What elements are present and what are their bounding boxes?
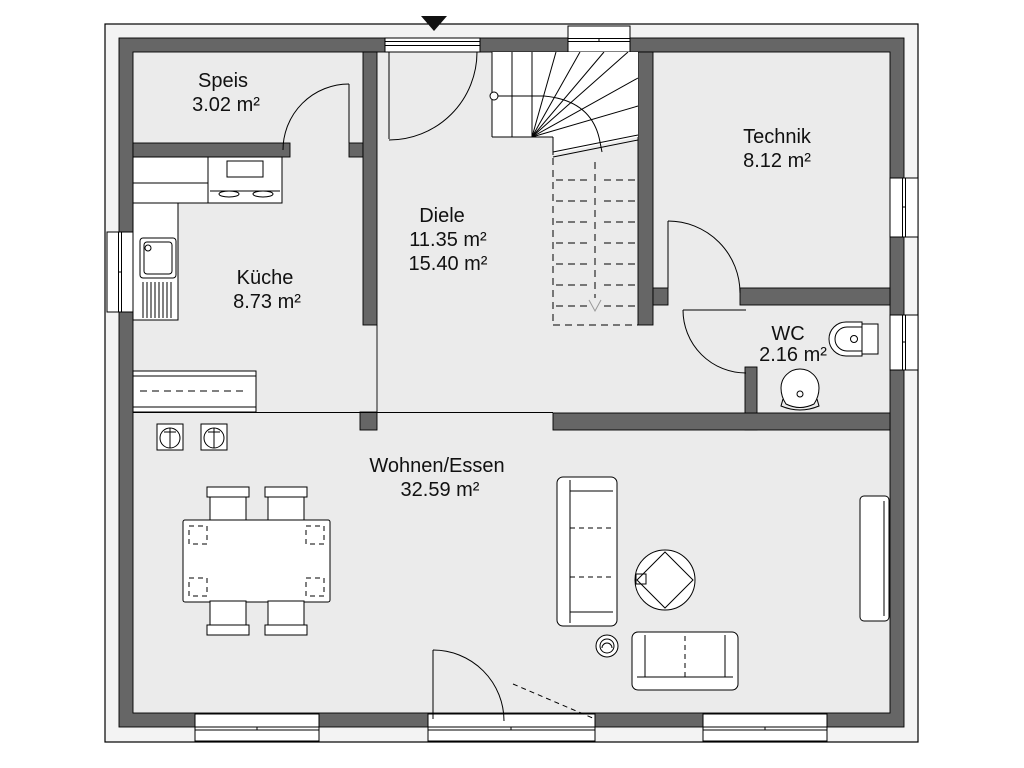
window-bottom-left bbox=[195, 714, 319, 741]
plant bbox=[596, 635, 618, 657]
room-label-speis: Speis bbox=[198, 70, 248, 92]
window-right-wc bbox=[890, 315, 918, 370]
room-label-wohnen-essen: Wohnen/Essen bbox=[369, 455, 504, 477]
room-area-diele: 11.35 m² bbox=[409, 229, 487, 251]
window-left-kueche bbox=[107, 232, 133, 312]
room-area-total-diele: 15.40 m² bbox=[409, 253, 488, 275]
room-area-speis: 3.02 m² bbox=[192, 94, 260, 116]
dining-table bbox=[183, 520, 330, 602]
wash-basin bbox=[781, 369, 819, 410]
wall-technik-bottom-right bbox=[740, 288, 890, 305]
coffee-table-round bbox=[635, 550, 695, 610]
wall-speis-bottom-stub bbox=[349, 143, 363, 157]
dining-chair bbox=[265, 487, 307, 521]
room-label-diele: Diele bbox=[419, 205, 465, 227]
wall-kueche-diele bbox=[363, 52, 377, 325]
dining-chair bbox=[207, 601, 249, 635]
window-right-technik bbox=[890, 178, 918, 237]
room-area-kueche: 8.73 m² bbox=[233, 291, 301, 313]
floor-plan-canvas: Speis 3.02 m² Diele 11.35 m² 15.40 m² Te… bbox=[0, 0, 1024, 768]
room-label-wc: WC bbox=[771, 323, 804, 345]
kitchen-sink bbox=[140, 238, 176, 278]
wall-stair-right bbox=[638, 52, 653, 325]
wall-stub-bar bbox=[360, 412, 377, 430]
floor-plan-page: Speis 3.02 m² Diele 11.35 m² 15.40 m² Te… bbox=[0, 0, 1024, 768]
sofa-three-seat bbox=[557, 477, 617, 626]
toilet bbox=[829, 322, 878, 356]
kitchen-oven bbox=[227, 161, 263, 177]
dining-chair bbox=[265, 601, 307, 635]
window-top-stair bbox=[568, 26, 630, 52]
room-area-technik: 8.12 m² bbox=[743, 150, 811, 172]
sideboard bbox=[860, 496, 889, 621]
window-bottom-right bbox=[703, 714, 827, 741]
room-area-wohnen-essen: 32.59 m² bbox=[401, 479, 480, 501]
bar-stool bbox=[157, 424, 183, 450]
bar-stool bbox=[201, 424, 227, 450]
room-label-technik: Technik bbox=[743, 126, 812, 148]
wall-speis-bottom bbox=[133, 143, 290, 157]
room-area-wc: 2.16 m² bbox=[759, 344, 827, 366]
wall-technik-bottom-left bbox=[653, 288, 668, 305]
patio-door-threshold bbox=[428, 714, 595, 741]
wall-wohnen-top bbox=[553, 413, 890, 430]
room-label-kueche: Küche bbox=[237, 267, 294, 289]
kitchen-bar-counter bbox=[133, 371, 256, 412]
sofa-two-seat bbox=[632, 632, 738, 690]
dining-chair bbox=[207, 487, 249, 521]
